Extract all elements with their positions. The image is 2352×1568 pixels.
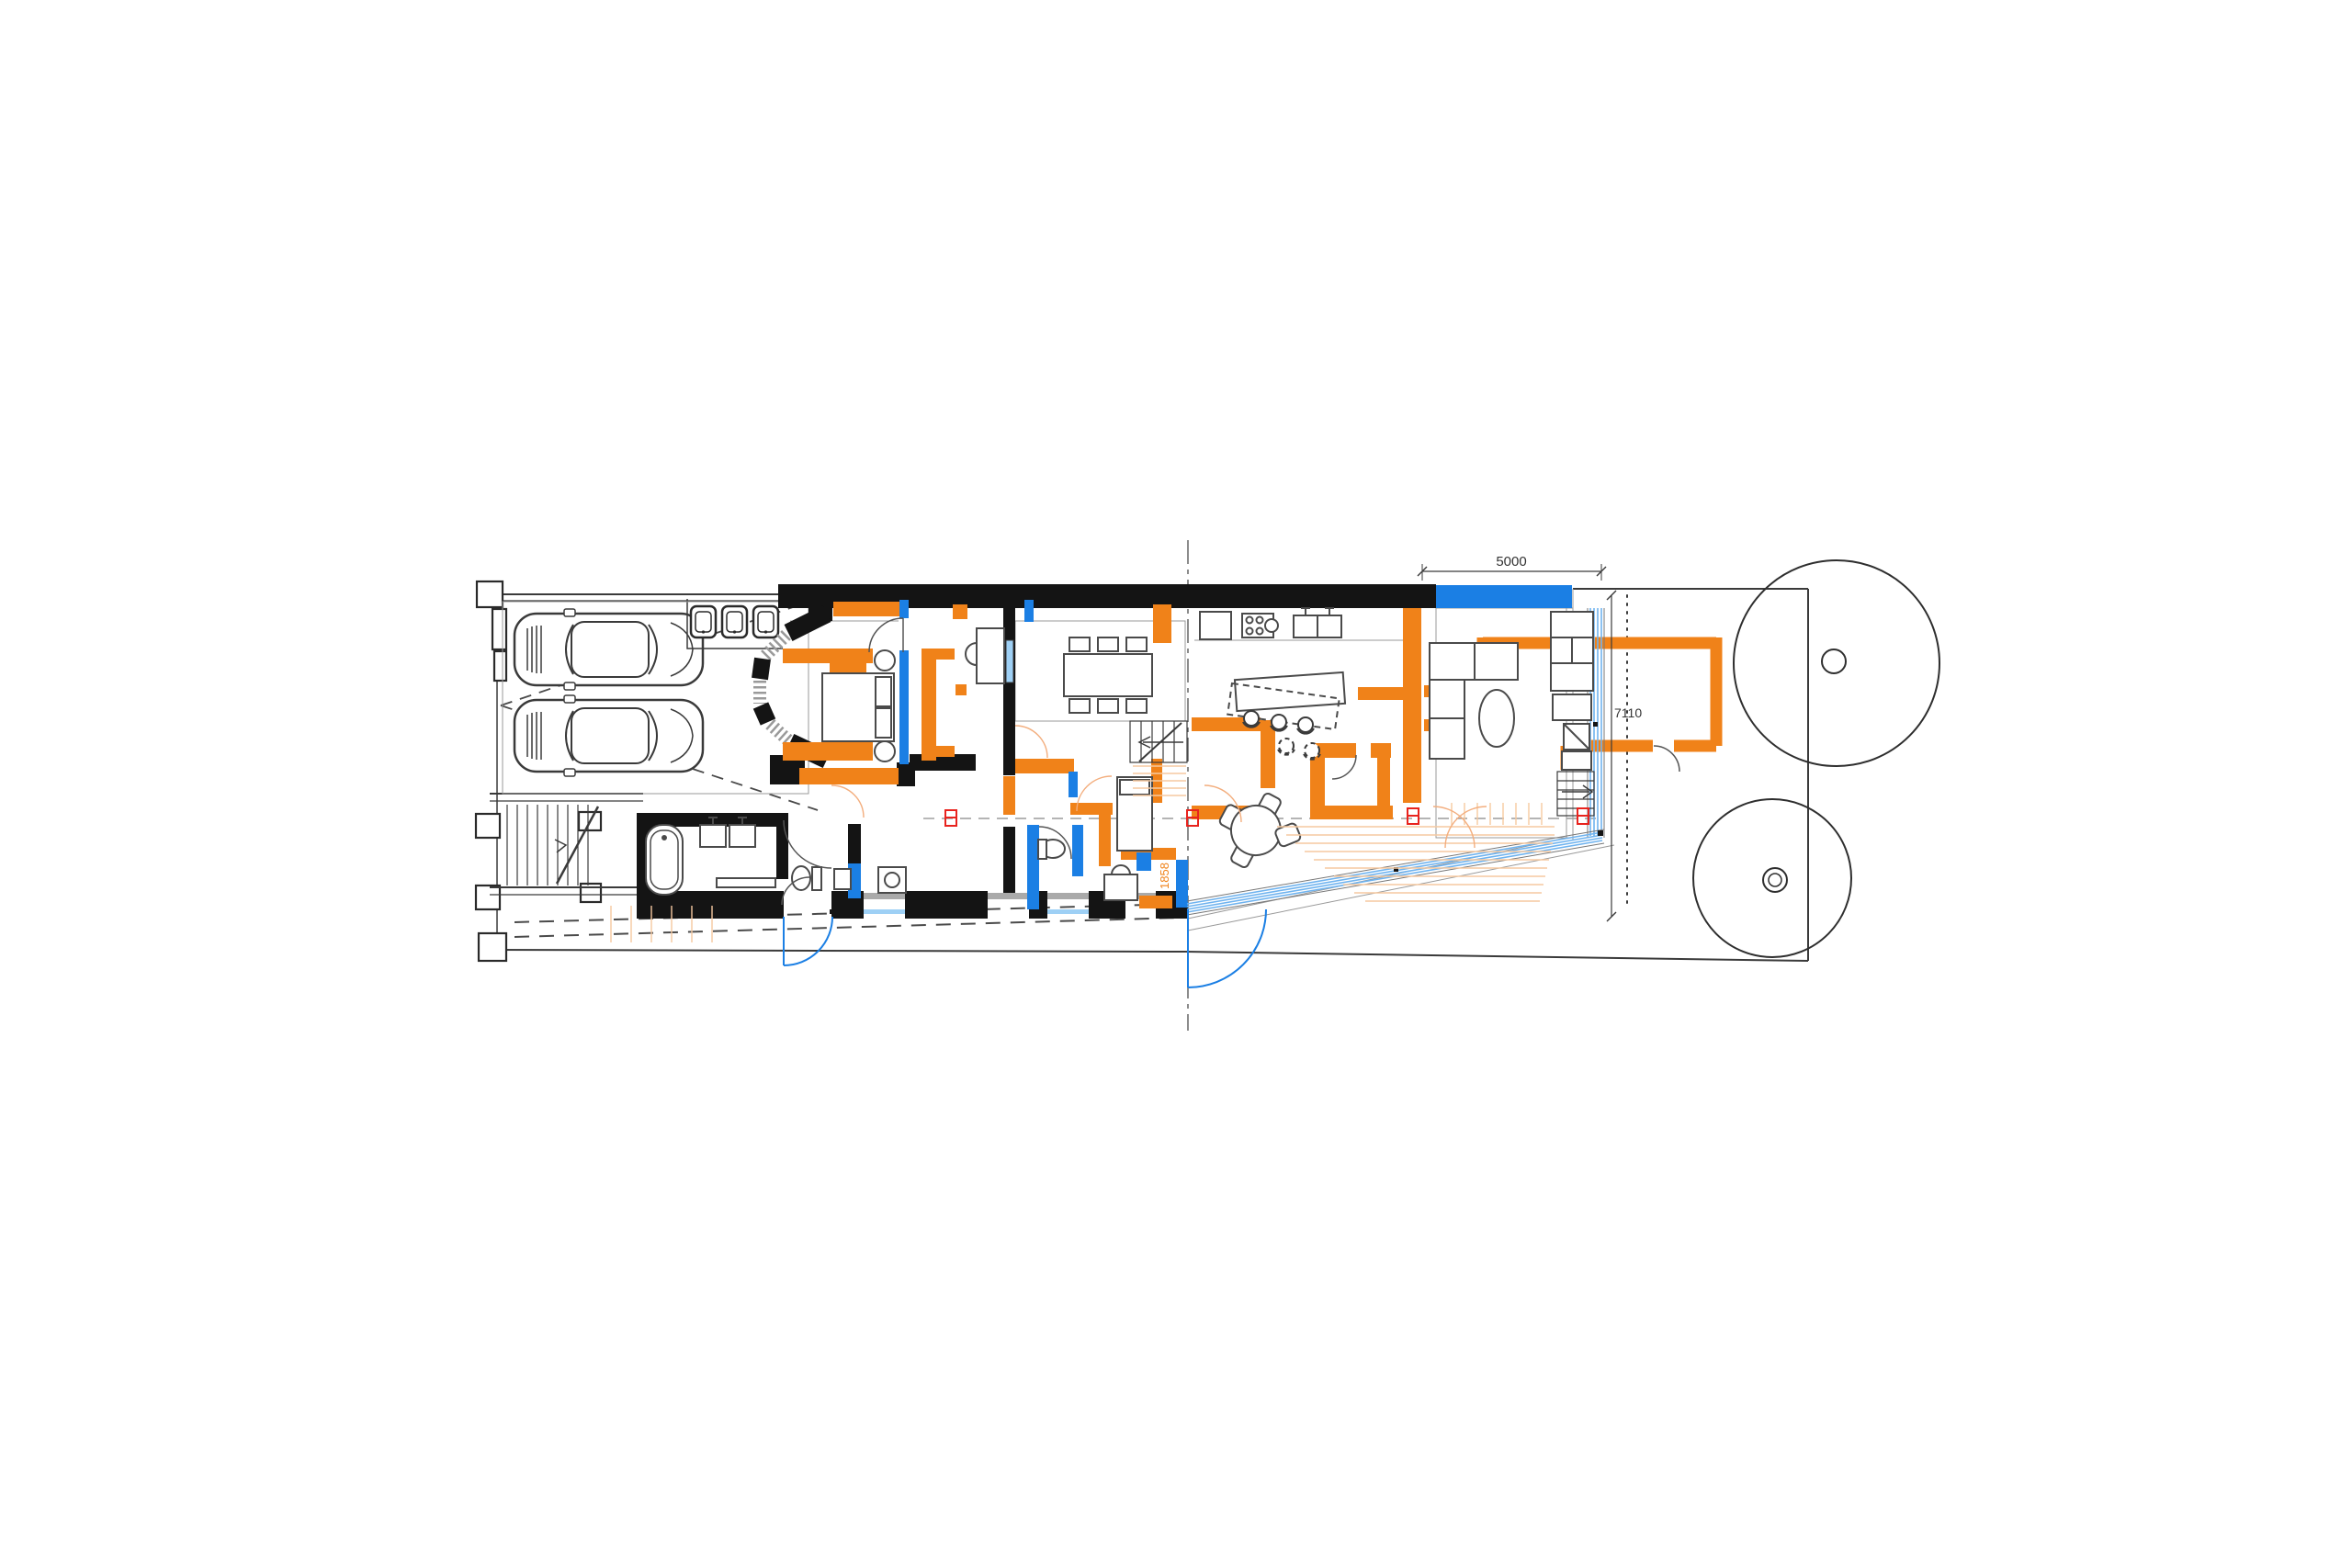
internal-stair-main <box>1130 721 1187 762</box>
laundry-sink <box>1104 865 1137 900</box>
desk-chair <box>966 643 977 665</box>
retaining-walls <box>490 794 643 895</box>
bedroom-door-swing <box>869 618 903 652</box>
floor-plan-canvas: 5000 7110 1858 <box>0 0 2352 1568</box>
dimension-label-5000: 5000 <box>1496 554 1526 570</box>
toilet-2 <box>1038 840 1065 859</box>
bedroom-wardrobe-strip <box>833 602 900 616</box>
entry-jamb <box>1176 860 1188 908</box>
dimension-label-1858: 1858 <box>1158 863 1171 889</box>
stair-direction-arrow <box>555 840 566 852</box>
garage <box>514 599 783 776</box>
car-1 <box>514 609 703 690</box>
bay-glazing-3 <box>770 724 788 740</box>
dimension-label-7110: 7110 <box>1614 705 1642 720</box>
dining-table <box>1064 654 1152 696</box>
bedside-table-1 <box>875 650 895 671</box>
door-swings <box>782 618 1679 987</box>
new-top-wall <box>1436 585 1572 608</box>
fridge <box>1200 612 1231 639</box>
wc-basin <box>834 869 851 889</box>
main-entry-door-swing <box>1188 909 1266 987</box>
bath-bench <box>717 878 775 887</box>
tree-1 <box>1734 560 1939 766</box>
tree-2 <box>1693 799 1851 957</box>
washing-machine <box>878 867 906 893</box>
fixtures <box>646 818 1137 900</box>
bottom-boundary <box>490 950 1808 961</box>
floor-plan-drawing: 5000 7110 1858 <box>0 0 2352 1568</box>
bin-1 <box>691 606 716 637</box>
hall-wall <box>799 768 899 784</box>
bedroom-closet-wall <box>899 650 909 764</box>
bin-2 <box>722 606 747 637</box>
dimension-5000: 5000 <box>1418 554 1606 581</box>
section-marker-1 <box>945 810 956 826</box>
bathtub <box>646 825 683 895</box>
trees <box>1693 560 1939 957</box>
desk <box>977 628 1004 683</box>
coffee-table <box>1479 690 1514 747</box>
basin-1 <box>700 825 726 847</box>
shelving-unit <box>1551 612 1593 770</box>
breakfast-table-set <box>1205 779 1313 886</box>
section-marker-3 <box>1408 808 1419 824</box>
car-2 <box>514 695 703 776</box>
toilet-1 <box>792 866 821 890</box>
internal-window <box>1006 640 1013 682</box>
bin-3 <box>753 606 778 637</box>
kitchen-counter <box>1200 608 1341 639</box>
bedside-table-2 <box>875 741 895 761</box>
bathroom-door-swing <box>784 820 831 868</box>
kitchen-living-wall <box>1403 608 1421 803</box>
dining-table-set <box>1064 637 1152 713</box>
extractor <box>1265 619 1278 632</box>
section-marker-4 <box>1577 808 1589 824</box>
front-door-swing <box>784 917 832 965</box>
basin-2 <box>729 825 755 847</box>
